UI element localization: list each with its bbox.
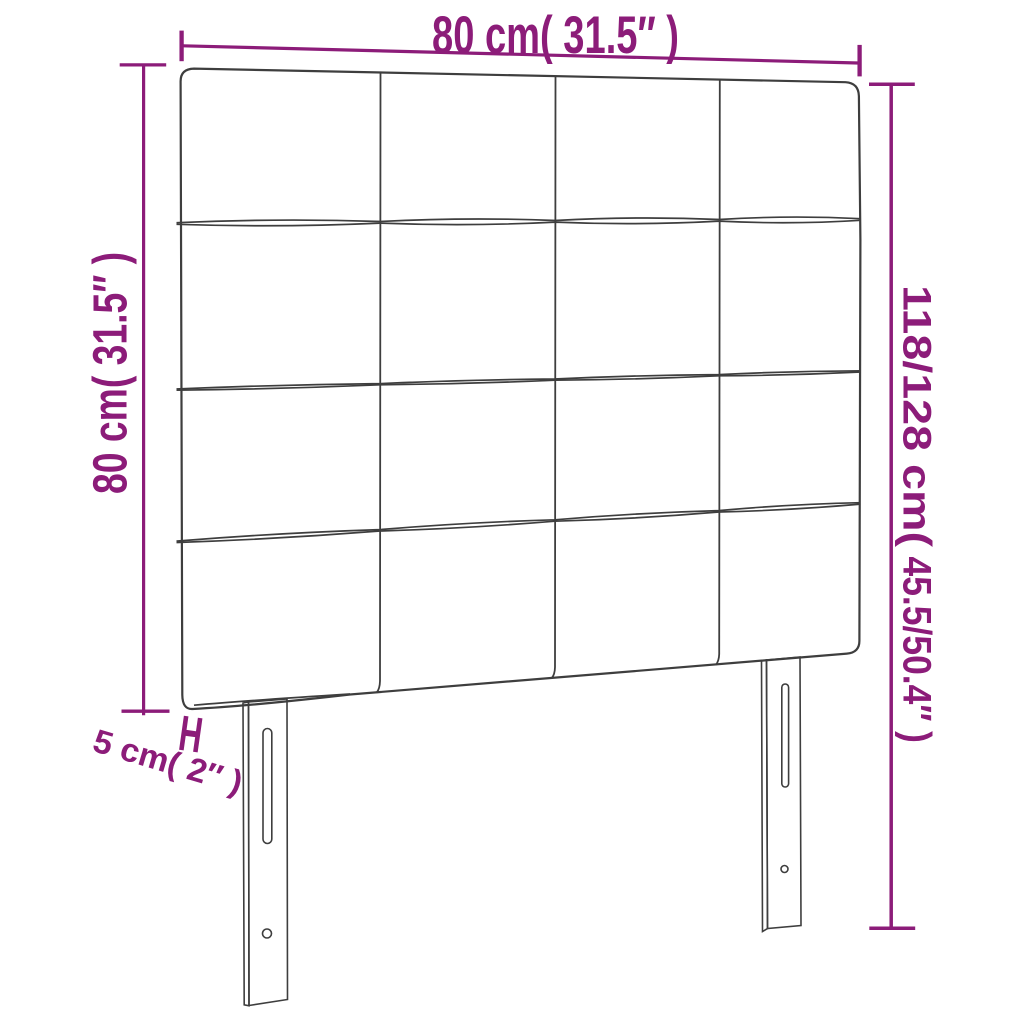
svg-text:80 cm( 31.5″ ): 80 cm( 31.5″ ) <box>85 252 138 494</box>
svg-text:80 cm( 31.5″ ): 80 cm( 31.5″ ) <box>432 6 679 65</box>
svg-text:45.5/50.4″ ): 45.5/50.4″ ) <box>895 557 939 744</box>
svg-text:118/128 cm(: 118/128 cm( <box>895 285 939 548</box>
svg-text:5 cm( 2″ ): 5 cm( 2″ ) <box>89 722 247 801</box>
